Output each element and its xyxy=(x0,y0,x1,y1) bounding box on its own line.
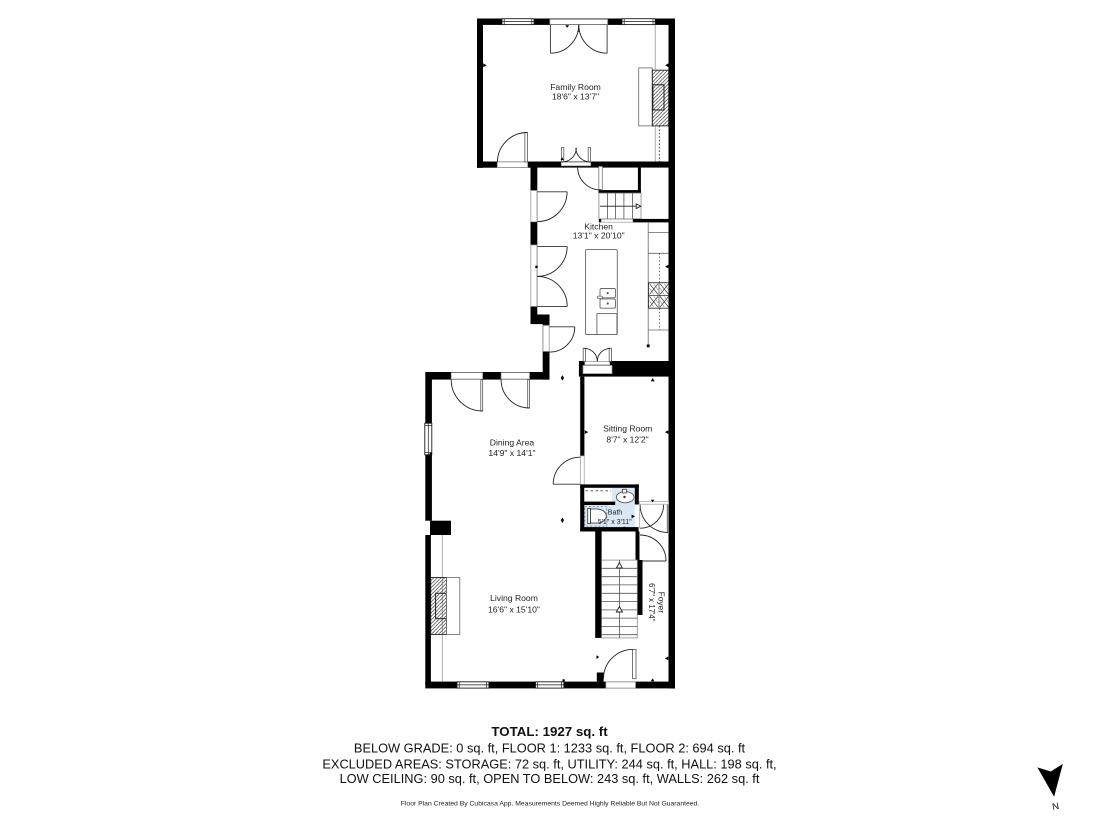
svg-text:Sitting Room: Sitting Room xyxy=(603,424,652,434)
svg-text:TOTAL: 1927 sq. ft: TOTAL: 1927 sq. ft xyxy=(491,724,608,739)
svg-text:Dining Area: Dining Area xyxy=(490,438,535,448)
svg-text:14'9" x 14'1": 14'9" x 14'1" xyxy=(488,448,535,458)
svg-text:BELOW GRADE: 0 sq. ft, FLOOR 1: BELOW GRADE: 0 sq. ft, FLOOR 1: 1233 sq.… xyxy=(354,741,746,756)
svg-text:8'7" x 12'2": 8'7" x 12'2" xyxy=(606,434,648,444)
svg-text:Living Room: Living Room xyxy=(490,593,538,603)
svg-text:Floor Plan Created By Cubicasa: Floor Plan Created By Cubicasa App. Meas… xyxy=(401,801,700,808)
svg-text:18'6" x 13'7": 18'6" x 13'7" xyxy=(552,92,599,102)
svg-text:13'1" x 20'10": 13'1" x 20'10" xyxy=(573,230,625,240)
svg-text:EXCLUDED AREAS: STORAGE: 72 sq: EXCLUDED AREAS: STORAGE: 72 sq. ft, UTIL… xyxy=(322,756,776,771)
svg-text:LOW CEILING: 90 sq. ft, OPEN T: LOW CEILING: 90 sq. ft, OPEN TO BELOW: 2… xyxy=(340,771,760,786)
svg-text:Family Room: Family Room xyxy=(550,82,601,92)
svg-text:Foyer: Foyer xyxy=(656,592,666,614)
svg-text:16'6" x 15'10": 16'6" x 15'10" xyxy=(488,604,540,614)
svg-text:Bath: Bath xyxy=(608,510,623,517)
svg-text:6'7" x 17'4": 6'7" x 17'4" xyxy=(647,583,656,622)
svg-text:5'1" x 3'11": 5'1" x 3'11" xyxy=(598,519,632,526)
